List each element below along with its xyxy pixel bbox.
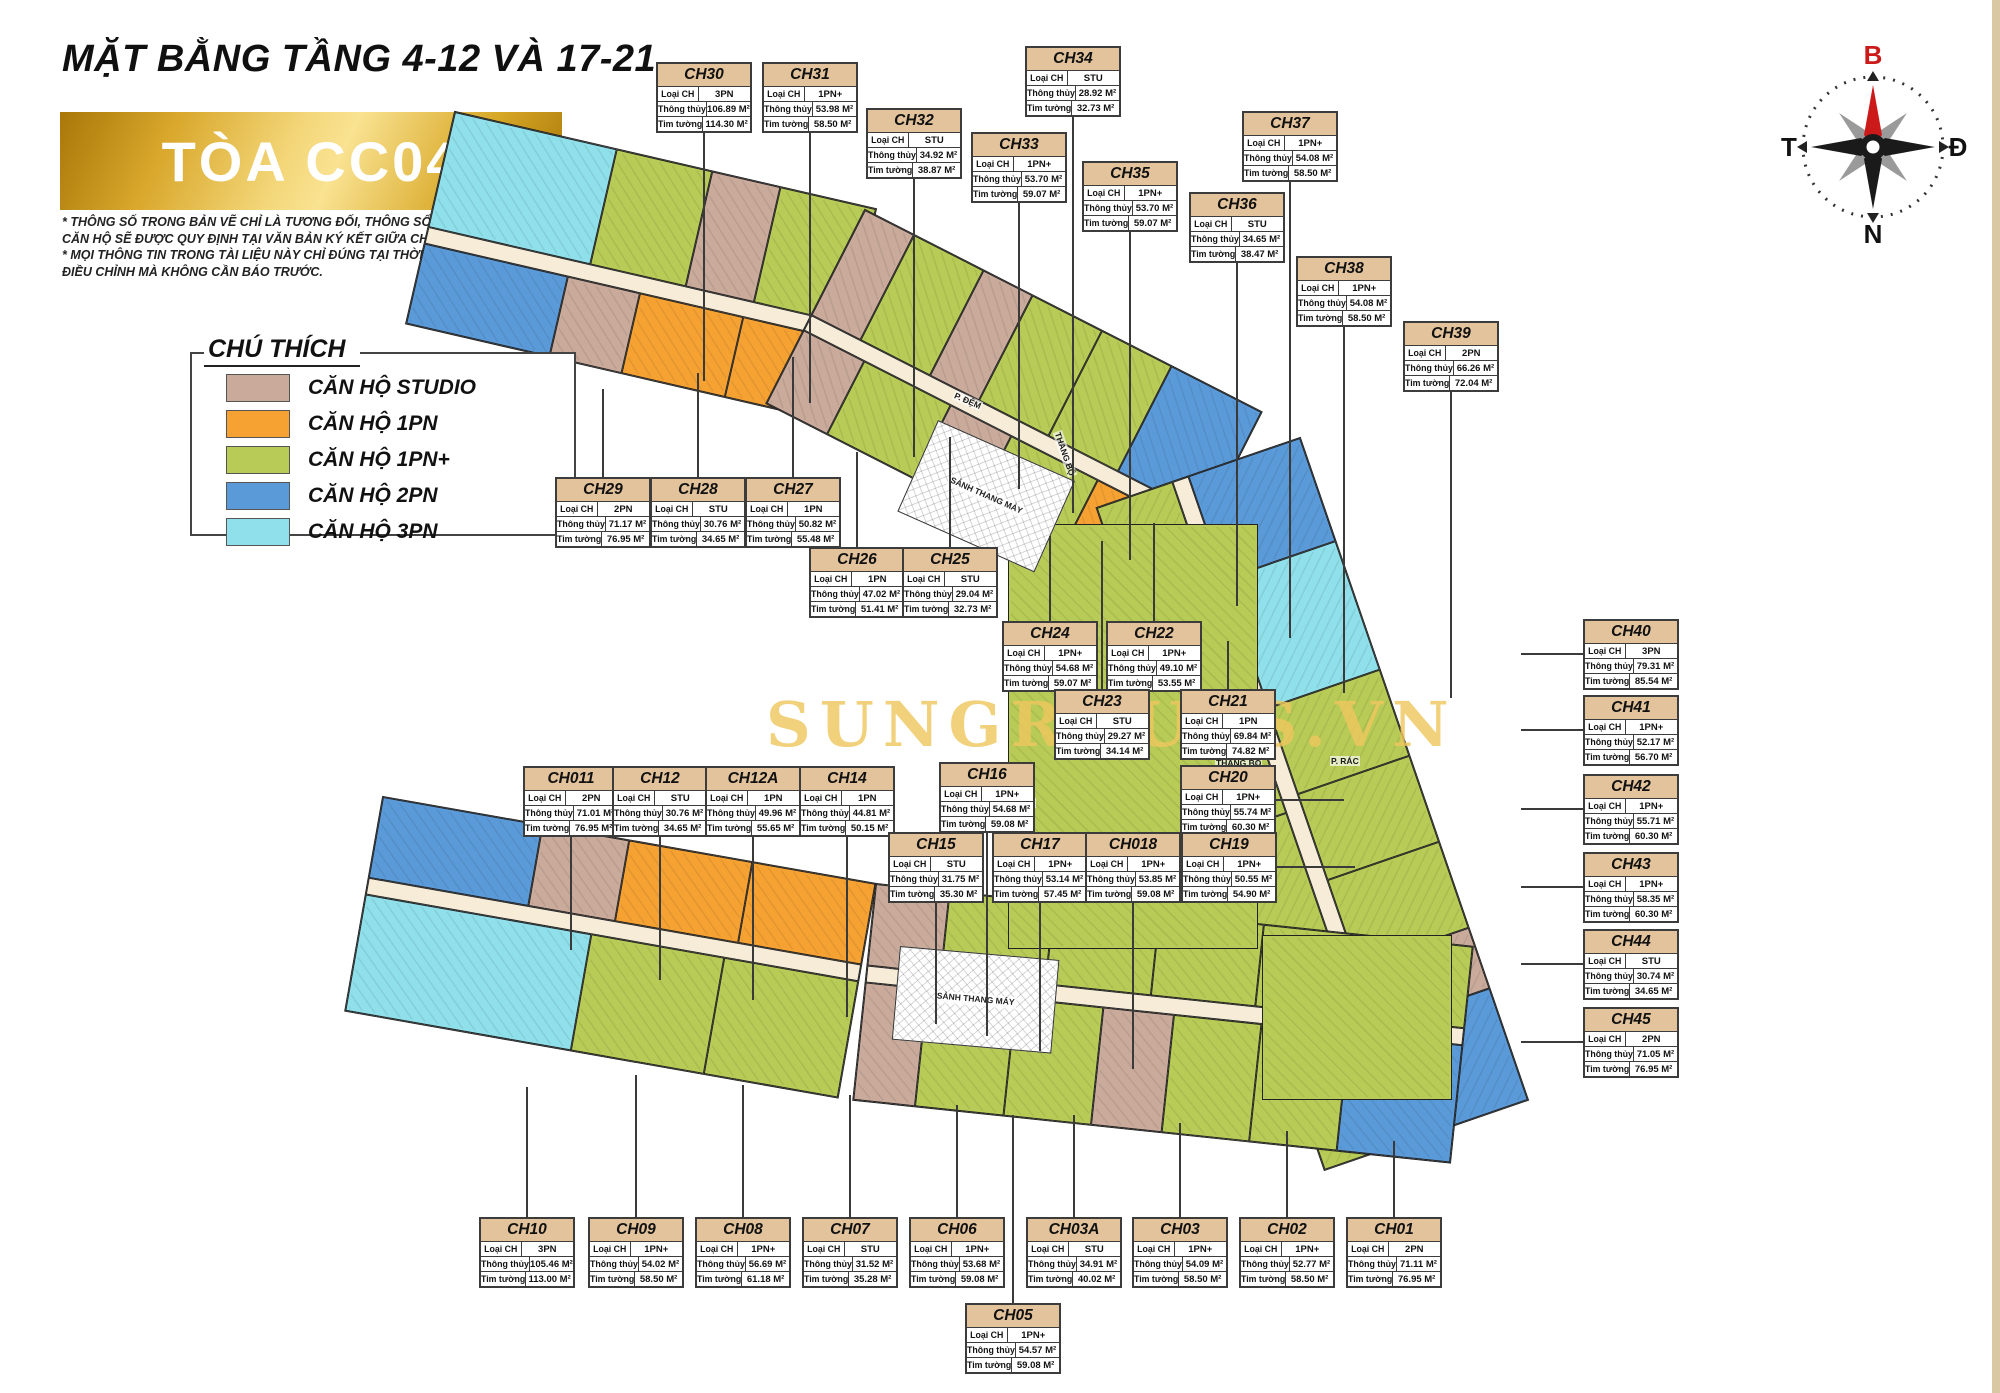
unit-card-row: Thông thủy34.65 M²: [1191, 232, 1283, 247]
unit-row-label: Loại CH: [1108, 646, 1149, 660]
unit-id: CH02: [1241, 1219, 1333, 1242]
unit-card-row: Tim tường35.30 M²: [890, 887, 982, 901]
unit-card-row: Thông thủy53.98 M²: [764, 102, 856, 117]
leader-line-CH31: [809, 131, 811, 403]
leader-line-CH16: [986, 831, 988, 1036]
unit-id: CH39: [1405, 323, 1497, 346]
unit-card-row: Loại CH2PN: [1585, 1032, 1677, 1047]
leader-line-CH27: [792, 357, 794, 477]
unit-row-label: Tim tường: [1244, 166, 1289, 180]
unit-row-value: 55.48 M²: [792, 532, 839, 546]
unit-row-label: Thông thủy: [1191, 232, 1240, 246]
unit-row-value: 76.95 M²: [1630, 1062, 1677, 1076]
unit-id: CH22: [1108, 623, 1200, 646]
unit-card-row: Tim tường59.07 M²: [1084, 216, 1176, 230]
unit-card-row: Thông thủy29.27 M²: [1056, 729, 1148, 744]
unit-row-label: Thông thủy: [804, 1257, 853, 1271]
unit-row-label: Thông thủy: [697, 1257, 746, 1271]
unit-row-label: Tim tường: [1585, 829, 1630, 843]
unit-row-value: 1PN+: [805, 87, 856, 101]
unit-card-row: Loại CHSTU: [1027, 71, 1119, 86]
unit-id: CH15: [890, 834, 982, 857]
unit-card-row: Thông thủy47.02 M²: [811, 587, 903, 602]
unit-row-label: Thông thủy: [1027, 86, 1076, 100]
unit-row-value: 44.81 M²: [850, 806, 893, 820]
unit-row-value: 60.30 M²: [1630, 907, 1677, 921]
unit-row-value: 72.04 M²: [1450, 376, 1497, 390]
unit-card-CH018: CH018Loại CH1PN+Thông thủy53.85 M²Tim tư…: [1085, 832, 1181, 903]
unit-card-row: Tim tường113.00 M²: [481, 1272, 573, 1286]
unit-row-label: Loại CH: [697, 1242, 738, 1256]
unit-row-label: Loại CH: [707, 791, 748, 805]
unit-row-value: 34.65 M²: [1630, 984, 1677, 998]
unit-row-value: STU: [1069, 1242, 1120, 1256]
unit-id: CH34: [1027, 48, 1119, 71]
unit-row-label: Thông thủy: [1087, 872, 1136, 886]
unit-id: CH05: [967, 1305, 1059, 1328]
unit-id: CH19: [1183, 834, 1275, 857]
unit-row-value: 58.50 M²: [1343, 311, 1390, 325]
unit-row-label: Loại CH: [1585, 799, 1626, 813]
unit-card-row: Tim tường58.50 M²: [1298, 311, 1390, 325]
legend-swatch-STU: [226, 374, 290, 402]
unit-row-value: 1PN+: [1035, 857, 1086, 871]
unit-row-value: 38.87 M²: [913, 163, 960, 177]
unit-row-value: 30.76 M²: [663, 806, 706, 820]
unit-card-row: Tim tường59.08 M²: [967, 1358, 1059, 1372]
leader-line-CH43: [1521, 886, 1583, 888]
unit-card-CH27: CH27Loại CH1PNThông thủy50.82 M²Tim tườn…: [745, 477, 841, 548]
unit-row-label: Thông thủy: [707, 806, 756, 820]
unit-row-label: Loại CH: [1028, 1242, 1069, 1256]
unit-row-value: 3PN: [1626, 644, 1677, 658]
unit-row-value: 34.14 M²: [1101, 744, 1148, 758]
leader-line-CH39: [1450, 390, 1452, 698]
legend-swatch-2PN: [226, 482, 290, 510]
leader-line-CH17: [1039, 901, 1041, 1051]
unit-row-label: Tim tường: [911, 1272, 956, 1286]
unit-card-row: Loại CH2PN: [557, 502, 649, 517]
unit-card-row: Thông thủy69.84 M²: [1182, 729, 1274, 744]
unit-card-CH12A: CH12ALoại CH1PNThông thủy49.96 M²Tim tườ…: [705, 766, 801, 837]
legend-item-label: CĂN HỘ 2PN: [308, 484, 438, 508]
unit-row-value: 76.95 M²: [1393, 1272, 1440, 1286]
leader-line-CH44: [1521, 963, 1583, 965]
unit-row-value: 59.08 M²: [1012, 1358, 1059, 1372]
unit-row-value: 69.84 M²: [1231, 729, 1274, 743]
apartment-cell-1PN+: [571, 934, 725, 1074]
legend-swatch-1PN+: [226, 446, 290, 474]
legend-swatch-3PN: [226, 518, 290, 546]
unit-card-row: Tim tường60.30 M²: [1585, 907, 1677, 921]
unit-card-row: Thông thủy54.08 M²: [1298, 296, 1390, 311]
unit-card-row: Loại CH1PN+: [1134, 1242, 1226, 1257]
unit-row-label: Tim tường: [904, 602, 949, 616]
unit-row-label: Loại CH: [811, 572, 852, 586]
unit-row-label: Tim tường: [941, 817, 986, 831]
unit-row-value: 74.82 M²: [1227, 744, 1274, 758]
leader-line-CH20: [1274, 799, 1344, 801]
unit-id: CH011: [525, 768, 617, 791]
unit-row-value: 61.18 M²: [742, 1272, 789, 1286]
unit-row-value: 53.55 M²: [1153, 676, 1200, 690]
unit-row-value: 1PN+: [1008, 1328, 1059, 1342]
unit-row-value: 30.74 M²: [1634, 969, 1677, 983]
unit-row-label: Thông thủy: [652, 517, 701, 531]
unit-row-label: Tim tường: [1087, 887, 1132, 901]
unit-card-row: Loại CHSTU: [868, 133, 960, 148]
legend: CHÚ THÍCH CĂN HỘ STUDIOCĂN HỘ 1PNCĂN HỘ …: [190, 352, 576, 536]
unit-card-row: Tim tường34.65 M²: [652, 532, 744, 546]
unit-id: CH25: [904, 549, 996, 572]
leader-line-CH30: [703, 131, 705, 381]
leader-line-CH03A: [1073, 1115, 1075, 1217]
unit-row-value: 3PN: [699, 87, 750, 101]
unit-row-value: 53.98 M²: [813, 102, 856, 116]
unit-row-label: Thông thủy: [1004, 661, 1053, 675]
unit-row-label: Thông thủy: [1183, 872, 1232, 886]
unit-card-row: Loại CHSTU: [804, 1242, 896, 1257]
unit-id: CH44: [1585, 931, 1677, 954]
unit-card-row: Loại CH3PN: [481, 1242, 573, 1257]
unit-card-CH44: CH44Loại CHSTUThông thủy30.74 M²Tim tườn…: [1583, 929, 1679, 1000]
unit-id: CH07: [804, 1219, 896, 1242]
unit-card-row: Tim tường72.04 M²: [1405, 376, 1497, 390]
unit-card-row: Thông thủy66.26 M²: [1405, 361, 1497, 376]
legend-item-1PN: CĂN HỘ 1PN: [226, 410, 564, 438]
unit-card-CH09: CH09Loại CH1PN+Thông thủy54.02 M²Tim tườ…: [588, 1217, 684, 1288]
unit-row-value: 58.50 M²: [1179, 1272, 1226, 1286]
unit-card-row: Thông thủy54.09 M²: [1134, 1257, 1226, 1272]
unit-row-value: 49.10 M²: [1157, 661, 1200, 675]
unit-row-value: 1PN: [1223, 714, 1274, 728]
unit-row-value: 113.00 M²: [526, 1272, 573, 1286]
compass-arrow-west: [1797, 141, 1807, 153]
unit-row-value: 1PN+: [1626, 799, 1677, 813]
unit-row-label: Thông thủy: [1585, 659, 1634, 673]
unit-row-value: 71.05 M²: [1634, 1047, 1677, 1061]
unit-row-value: 2PN: [566, 791, 617, 805]
unit-card-row: Loại CH3PN: [1585, 644, 1677, 659]
unit-card-row: Tim tường40.02 M²: [1028, 1272, 1120, 1286]
unit-row-label: Thông thủy: [614, 806, 663, 820]
unit-card-CH42: CH42Loại CH1PN+Thông thủy55.71 M²Tim tườ…: [1583, 774, 1679, 845]
unit-row-value: 2PN: [1389, 1242, 1440, 1256]
unit-row-value: 1PN+: [738, 1242, 789, 1256]
unit-row-label: Thông thủy: [658, 102, 707, 116]
unit-card-CH15: CH15Loại CHSTUThông thủy31.75 M²Tim tườn…: [888, 832, 984, 903]
unit-row-label: Loại CH: [525, 791, 566, 805]
unit-id: CH16: [941, 764, 1033, 787]
unit-id: CH43: [1585, 854, 1677, 877]
unit-row-label: Tim tường: [525, 821, 570, 835]
unit-id: CH08: [697, 1219, 789, 1242]
unit-row-label: Loại CH: [1182, 714, 1223, 728]
unit-id: CH26: [811, 549, 903, 572]
leader-line-CH05: [1012, 1115, 1014, 1303]
unit-row-value: STU: [909, 133, 960, 147]
unit-row-value: 55.74 M²: [1231, 805, 1274, 819]
unit-card-CH12: CH12Loại CHSTUThông thủy30.76 M²Tim tườn…: [612, 766, 708, 837]
unit-row-value: 55.71 M²: [1634, 814, 1677, 828]
unit-row-value: 1PN+: [1175, 1242, 1226, 1256]
unit-row-label: Tim tường: [1004, 676, 1049, 690]
unit-card-row: Tim tường58.50 M²: [590, 1272, 682, 1286]
unit-card-row: Loại CHSTU: [614, 791, 706, 806]
unit-card-row: Thông thủy71.17 M²: [557, 517, 649, 532]
unit-row-value: 32.73 M²: [1072, 101, 1119, 115]
unit-card-row: Loại CH1PN+: [1585, 720, 1677, 735]
unit-row-value: 58.50 M²: [635, 1272, 682, 1286]
unit-row-value: 1PN+: [1045, 646, 1096, 660]
leader-line-CH02: [1286, 1131, 1288, 1217]
unit-row-value: 50.15 M²: [846, 821, 893, 835]
unit-row-label: Tim tường: [747, 532, 792, 546]
unit-card-row: Loại CH1PN+: [1298, 281, 1390, 296]
unit-row-label: Thông thủy: [764, 102, 813, 116]
leader-line-CH03: [1179, 1123, 1181, 1217]
unit-card-row: Thông thủy105.46 M²: [481, 1257, 573, 1272]
unit-card-CH07: CH07Loại CHSTUThông thủy31.52 M²Tim tườn…: [802, 1217, 898, 1288]
leader-line-CH10: [526, 1087, 528, 1217]
unit-id: CH24: [1004, 623, 1096, 646]
unit-id: CH30: [658, 64, 750, 87]
unit-row-label: Tim tường: [1585, 674, 1630, 688]
unit-row-value: 71.01 M²: [574, 806, 617, 820]
unit-id: CH36: [1191, 194, 1283, 217]
unit-id: CH38: [1298, 258, 1390, 281]
unit-row-label: Tim tường: [557, 532, 602, 546]
leader-line-CH33: [1018, 201, 1020, 489]
unit-card-CH41: CH41Loại CH1PN+Thông thủy52.17 M²Tim tườ…: [1583, 695, 1679, 766]
leader-line-CH22: [1153, 523, 1155, 621]
leader-line-CH06: [956, 1105, 958, 1217]
unit-row-value: 54.08 M²: [1347, 296, 1390, 310]
leader-line-CH011: [570, 835, 572, 950]
unit-row-value: 52.77 M²: [1290, 1257, 1333, 1271]
unit-row-label: Loại CH: [1004, 646, 1045, 660]
unit-row-label: Loại CH: [764, 87, 805, 101]
unit-row-value: STU: [655, 791, 706, 805]
unit-row-label: Thông thủy: [481, 1257, 530, 1271]
unit-row-label: Tim tường: [1298, 311, 1343, 325]
unit-card-row: Thông thủy55.74 M²: [1182, 805, 1274, 820]
compass-icon: B Đ N T: [1778, 44, 1968, 244]
unit-row-label: Thông thủy: [1585, 735, 1634, 749]
unit-row-label: Loại CH: [1585, 954, 1626, 968]
unit-row-value: 51.41 M²: [856, 602, 903, 616]
unit-card-row: Thông thủy49.10 M²: [1108, 661, 1200, 676]
unit-id: CH33: [973, 134, 1065, 157]
unit-row-label: Thông thủy: [1405, 361, 1454, 375]
unit-row-label: Loại CH: [1244, 136, 1285, 150]
unit-row-value: 1PN+: [1282, 1242, 1333, 1256]
unit-card-row: Loại CH1PN: [707, 791, 799, 806]
unit-row-value: 1PN+: [952, 1242, 1003, 1256]
unit-card-CH36: CH36Loại CHSTUThông thủy34.65 M²Tim tườn…: [1189, 192, 1285, 263]
unit-id: CH12: [614, 768, 706, 791]
unit-row-value: 34.65 M²: [659, 821, 706, 835]
unit-row-label: Loại CH: [904, 572, 945, 586]
unit-card-row: Thông thủy52.17 M²: [1585, 735, 1677, 750]
unit-id: CH40: [1585, 621, 1677, 644]
unit-card-CH39: CH39Loại CH2PNThông thủy66.26 M²Tim tườn…: [1403, 321, 1499, 392]
unit-id: CH27: [747, 479, 839, 502]
unit-row-label: Tim tường: [658, 117, 703, 131]
unit-row-label: Thông thủy: [1134, 1257, 1183, 1271]
leader-line-CH14: [846, 835, 848, 1017]
unit-card-row: Loại CH1PN+: [590, 1242, 682, 1257]
unit-row-label: Loại CH: [804, 1242, 845, 1256]
unit-row-label: Thông thủy: [525, 806, 574, 820]
unit-row-label: Tim tường: [811, 602, 856, 616]
unit-id: CH21: [1182, 691, 1274, 714]
leader-line-CH09: [635, 1075, 637, 1217]
unit-card-row: Thông thủy53.70 M²: [1084, 201, 1176, 216]
legend-item-label: CĂN HỘ 1PN: [308, 412, 438, 436]
core-label: SẢNH THANG MÁY: [934, 990, 1017, 1009]
unit-card-row: Loại CH1PN+: [911, 1242, 1003, 1257]
unit-card-CH38: CH38Loại CH1PN+Thông thủy54.08 M²Tim tườ…: [1296, 256, 1392, 327]
unit-card-CH33: CH33Loại CH1PN+Thông thủy53.70 M²Tim tườ…: [971, 132, 1067, 203]
unit-id: CH09: [590, 1219, 682, 1242]
unit-row-label: Loại CH: [1298, 281, 1339, 295]
unit-row-label: Loại CH: [801, 791, 842, 805]
unit-row-value: STU: [931, 857, 982, 871]
unit-card-CH08: CH08Loại CH1PN+Thông thủy56.69 M²Tim tườ…: [695, 1217, 791, 1288]
unit-id: CH03A: [1028, 1219, 1120, 1242]
unit-id: CH32: [868, 110, 960, 133]
unit-row-label: Tim tường: [804, 1272, 849, 1286]
unit-card-row: Loại CHSTU: [1585, 954, 1677, 969]
unit-card-CH23: CH23Loại CHSTUThông thủy29.27 M²Tim tườn…: [1054, 689, 1150, 760]
unit-row-value: 1PN+: [1626, 720, 1677, 734]
unit-row-value: 1PN+: [1285, 136, 1336, 150]
unit-row-label: Loại CH: [1241, 1242, 1282, 1256]
unit-row-label: Thông thủy: [911, 1257, 960, 1271]
unit-row-value: 54.68 M²: [990, 802, 1033, 816]
unit-row-label: Thông thủy: [941, 802, 990, 816]
unit-card-row: Tim tường60.30 M²: [1585, 829, 1677, 843]
unit-card-row: Thông thủy79.31 M²: [1585, 659, 1677, 674]
unit-row-label: Loại CH: [481, 1242, 522, 1256]
unit-card-row: Tim tường51.41 M²: [811, 602, 903, 616]
unit-row-label: Loại CH: [1405, 346, 1446, 360]
unit-card-CH10: CH10Loại CH3PNThông thủy105.46 M²Tim tườ…: [479, 1217, 575, 1288]
unit-row-value: 59.07 M²: [1049, 676, 1096, 690]
unit-row-label: Tim tường: [614, 821, 659, 835]
unit-card-row: Thông thủy44.81 M²: [801, 806, 893, 821]
unit-card-row: Loại CH2PN: [1348, 1242, 1440, 1257]
unit-row-label: Thông thủy: [747, 517, 796, 531]
unit-row-label: Loại CH: [747, 502, 788, 516]
unit-card-row: Thông thủy49.96 M²: [707, 806, 799, 821]
unit-card-row: Tim tường74.82 M²: [1182, 744, 1274, 758]
unit-row-value: STU: [845, 1242, 896, 1256]
unit-row-value: 1PN: [748, 791, 799, 805]
unit-card-row: Tim tường34.65 M²: [1585, 984, 1677, 998]
unit-card-row: Loại CH1PN: [811, 572, 903, 587]
unit-id: CH23: [1056, 691, 1148, 714]
unit-card-row: Tim tường76.95 M²: [1348, 1272, 1440, 1286]
unit-card-row: Thông thủy52.77 M²: [1241, 1257, 1333, 1272]
apartment-cell-1PN+: [704, 958, 858, 1098]
unit-card-row: Loại CH1PN+: [1182, 790, 1274, 805]
unit-card-row: Tim tường76.95 M²: [525, 821, 617, 835]
legend-title: CHÚ THÍCH: [204, 335, 360, 367]
unit-row-label: Loại CH: [1056, 714, 1097, 728]
unit-card-CH011: CH011Loại CH2PNThông thủy71.01 M²Tim tườ…: [523, 766, 619, 837]
unit-row-label: Thông thủy: [994, 872, 1043, 886]
unit-row-label: Loại CH: [1087, 857, 1128, 871]
unit-row-label: Loại CH: [1585, 1032, 1626, 1046]
unit-row-value: STU: [1097, 714, 1148, 728]
leader-line-CH36: [1236, 261, 1238, 606]
unit-row-label: Loại CH: [868, 133, 909, 147]
unit-row-value: 58.50 M²: [1286, 1272, 1333, 1286]
unit-card-CH30: CH30Loại CH3PNThông thủy106.89 M²Tim tườ…: [656, 62, 752, 133]
unit-card-row: Loại CH1PN+: [1183, 857, 1275, 872]
leader-line-CH12A: [752, 835, 754, 1000]
unit-row-label: Tim tường: [1585, 1062, 1630, 1076]
unit-card-row: Loại CH3PN: [658, 87, 750, 102]
unit-row-value: 114.30 M²: [703, 117, 750, 131]
unit-row-label: Tim tường: [1405, 376, 1450, 390]
unit-row-value: 1PN+: [1125, 186, 1176, 200]
unit-id: CH37: [1244, 113, 1336, 136]
unit-card-CH26: CH26Loại CH1PNThông thủy47.02 M²Tim tườn…: [809, 547, 905, 618]
unit-card-CH03: CH03Loại CH1PN+Thông thủy54.09 M²Tim tườ…: [1132, 1217, 1228, 1288]
unit-row-label: Loại CH: [1084, 186, 1125, 200]
unit-id: CH10: [481, 1219, 573, 1242]
unit-row-label: Thông thủy: [1056, 729, 1105, 743]
unit-row-value: 66.26 M²: [1454, 361, 1497, 375]
unit-card-row: Tim tường55.65 M²: [707, 821, 799, 835]
unit-row-label: Tim tường: [890, 887, 935, 901]
unit-card-CH14: CH14Loại CH1PNThông thủy44.81 M²Tim tườn…: [799, 766, 895, 837]
unit-card-row: Tim tường58.50 M²: [764, 117, 856, 131]
unit-row-label: Loại CH: [1585, 877, 1626, 891]
unit-row-label: Thông thủy: [1585, 892, 1634, 906]
unit-card-row: Tim tường50.15 M²: [801, 821, 893, 835]
leader-line-CH41: [1521, 729, 1583, 731]
unit-row-value: 34.65 M²: [697, 532, 744, 546]
leader-line-CH42: [1521, 808, 1583, 810]
unit-card-row: Tim tường57.45 M²: [994, 887, 1086, 901]
unit-row-value: 2PN: [598, 502, 649, 516]
unit-card-row: Loại CHSTU: [652, 502, 744, 517]
unit-card-CH21: CH21Loại CH1PNThông thủy69.84 M²Tim tườn…: [1180, 689, 1276, 760]
leader-line-CH38: [1343, 325, 1345, 693]
unit-row-label: Tim tường: [994, 887, 1039, 901]
leader-line-CH15: [935, 901, 937, 1024]
unit-row-value: 79.31 M²: [1634, 659, 1677, 673]
unit-id: CH28: [652, 479, 744, 502]
unit-row-value: 85.54 M²: [1630, 674, 1677, 688]
unit-row-label: Tim tường: [1585, 750, 1630, 764]
unit-card-CH20: CH20Loại CH1PN+Thông thủy55.74 M²Tim tườ…: [1180, 765, 1276, 836]
unit-card-row: Tim tường59.08 M²: [911, 1272, 1003, 1286]
unit-card-row: Loại CH1PN+: [764, 87, 856, 102]
unit-row-value: 53.68 M²: [960, 1257, 1003, 1271]
unit-row-label: Loại CH: [1182, 790, 1223, 804]
unit-row-value: 3PN: [522, 1242, 573, 1256]
unit-row-label: Loại CH: [1585, 720, 1626, 734]
unit-row-label: Tim tường: [1183, 887, 1228, 901]
unit-row-value: 105.46 M²: [530, 1257, 573, 1271]
unit-row-label: Tim tường: [764, 117, 809, 131]
unit-row-label: Thông thủy: [868, 148, 917, 162]
